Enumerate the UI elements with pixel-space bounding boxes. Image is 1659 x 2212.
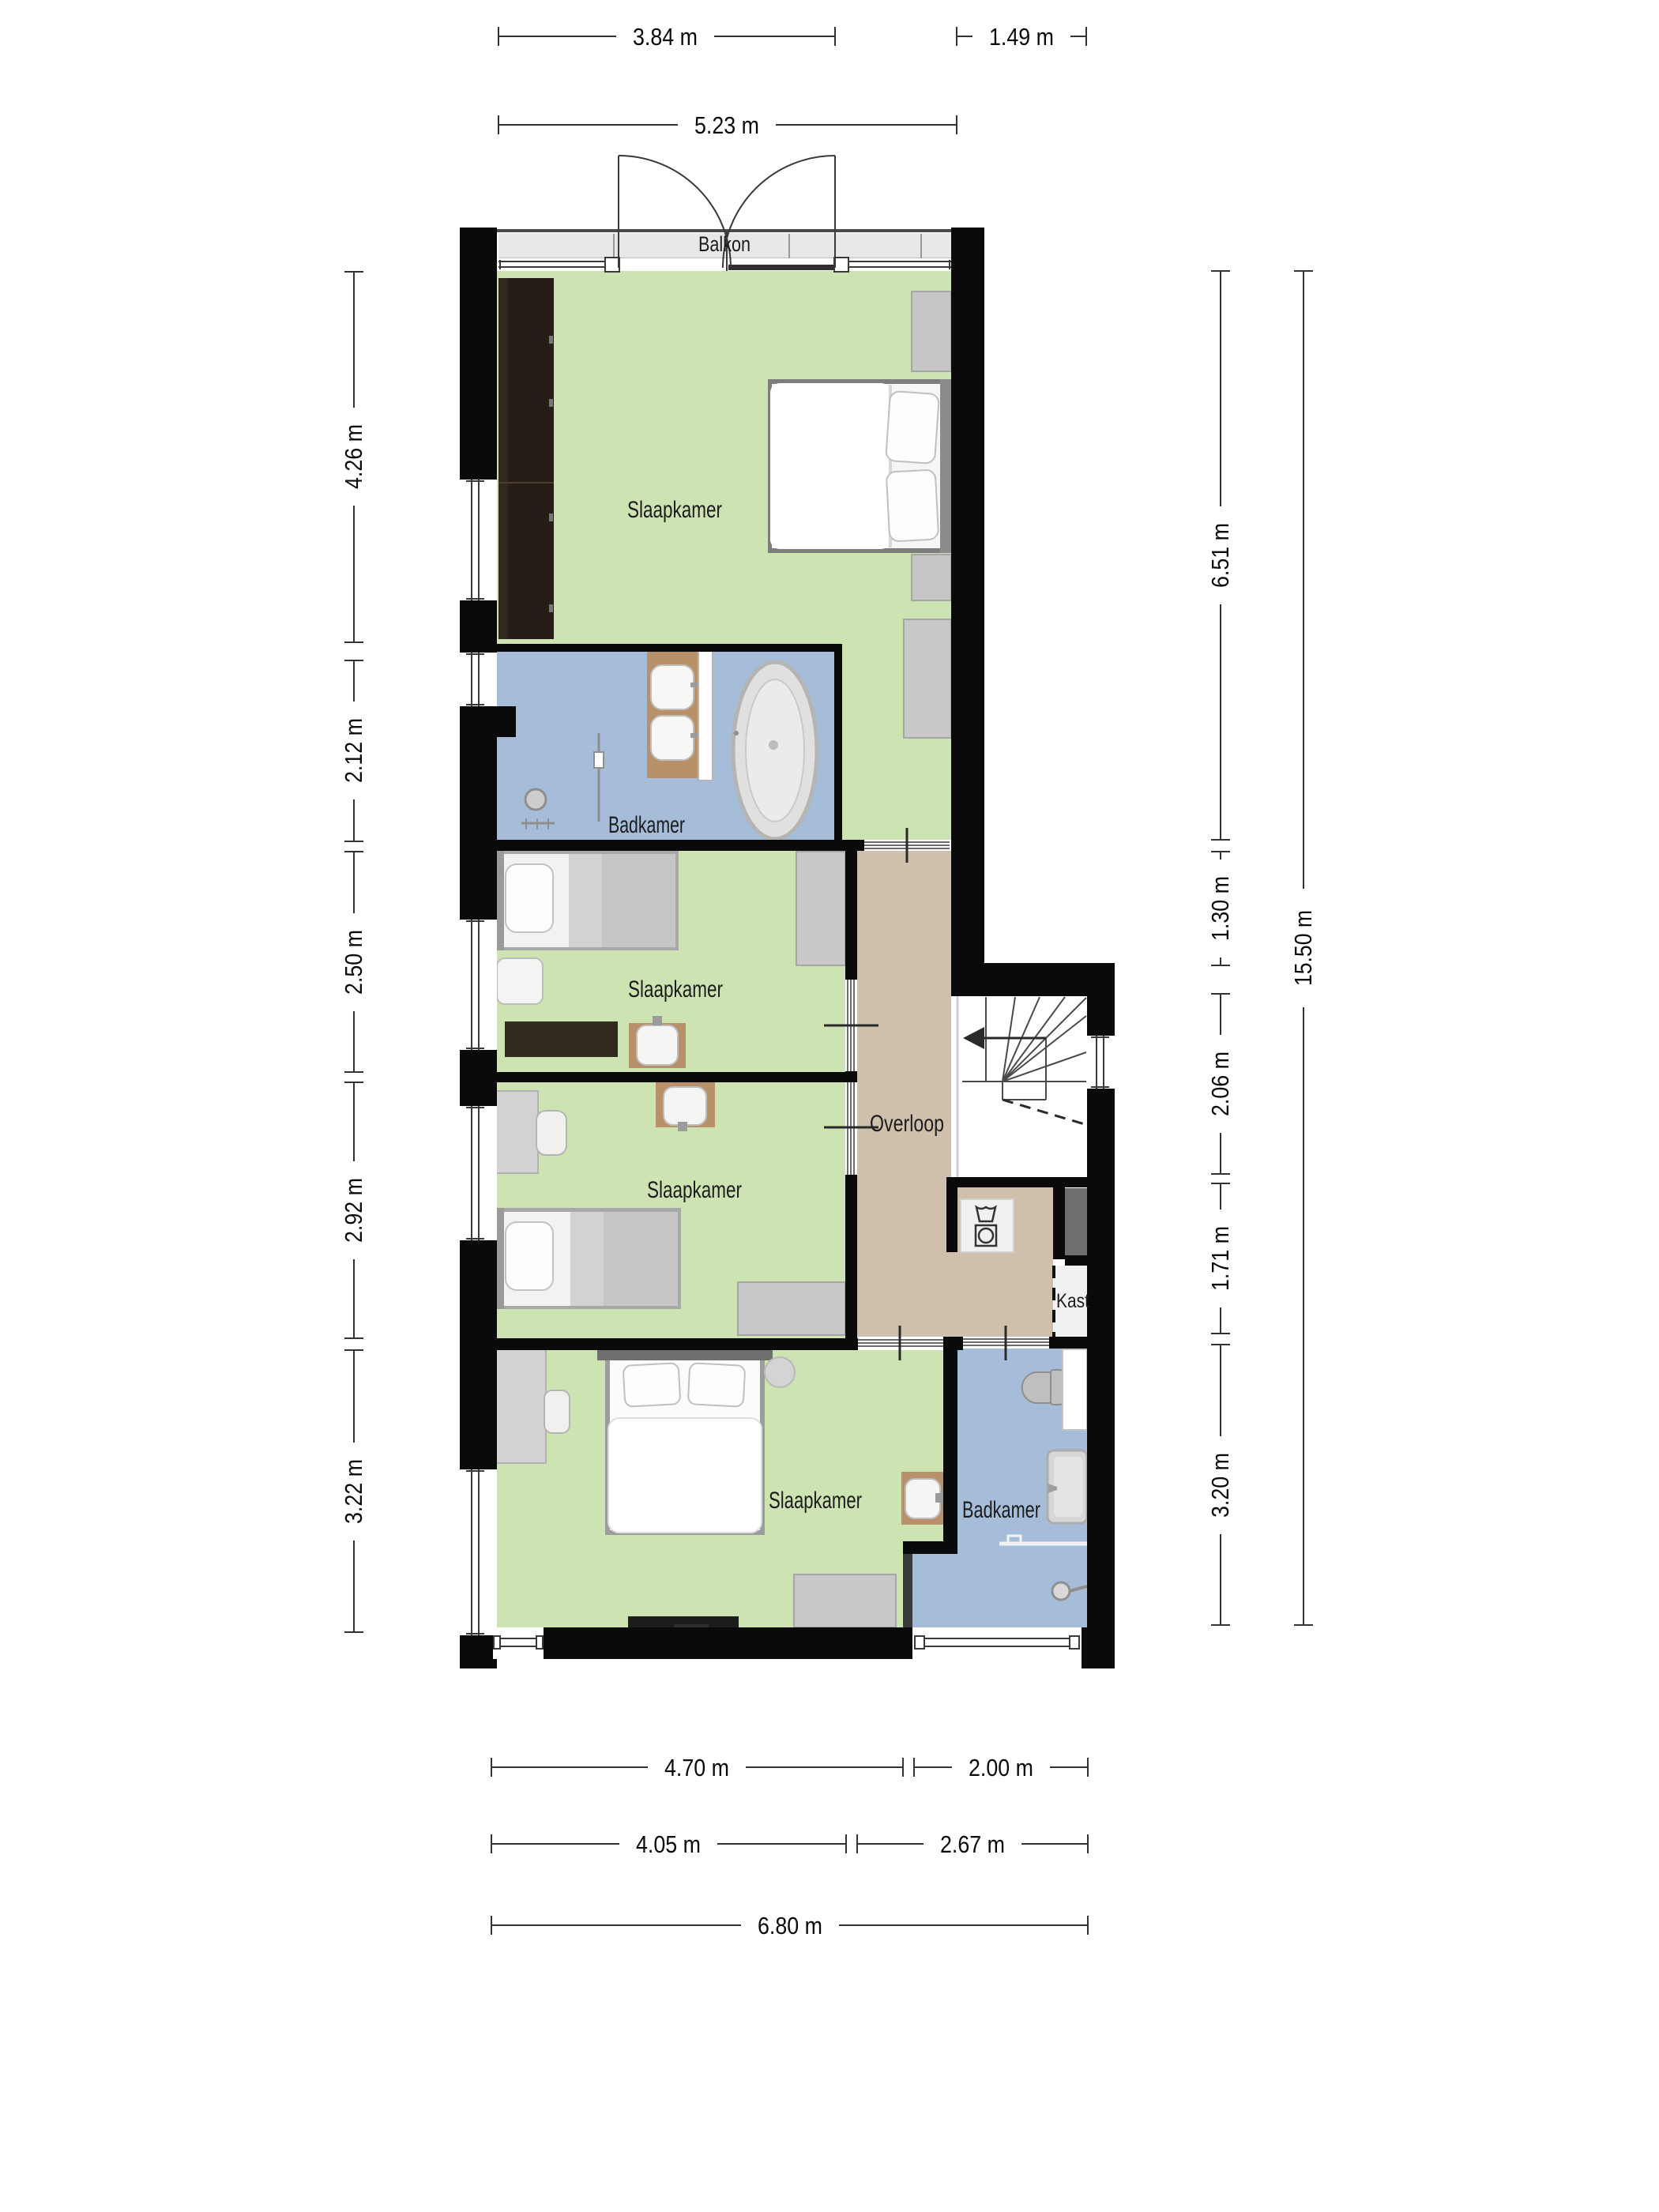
svg-text:2.12 m: 2.12 m <box>340 718 367 783</box>
svg-text:2.92 m: 2.92 m <box>340 1178 367 1243</box>
svg-text:Slaapkamer: Slaapkamer <box>627 497 722 523</box>
svg-text:Slaapkamer: Slaapkamer <box>647 1177 742 1203</box>
svg-text:3.84 m: 3.84 m <box>633 23 698 51</box>
svg-text:5.23 m: 5.23 m <box>694 111 759 139</box>
svg-text:2.00 m: 2.00 m <box>969 1754 1033 1781</box>
svg-text:15.50 m: 15.50 m <box>1289 910 1317 986</box>
svg-text:Overloop: Overloop <box>870 1111 944 1137</box>
svg-text:2.50 m: 2.50 m <box>340 930 367 995</box>
svg-text:2.06 m: 2.06 m <box>1206 1051 1234 1116</box>
svg-text:3.22 m: 3.22 m <box>340 1459 367 1524</box>
svg-text:4.05 m: 4.05 m <box>636 1830 701 1858</box>
svg-text:Slaapkamer: Slaapkamer <box>628 976 723 1003</box>
svg-text:4.26 m: 4.26 m <box>340 424 367 489</box>
svg-text:6.80 m: 6.80 m <box>758 1912 822 1939</box>
svg-text:Badkamer: Badkamer <box>608 812 685 838</box>
svg-text:1.49 m: 1.49 m <box>989 23 1054 51</box>
svg-text:6.51 m: 6.51 m <box>1206 523 1234 588</box>
svg-text:Badkamer: Badkamer <box>962 1497 1040 1523</box>
svg-text:Slaapkamer: Slaapkamer <box>769 1488 862 1514</box>
svg-text:2.67 m: 2.67 m <box>940 1830 1005 1858</box>
svg-text:1.30 m: 1.30 m <box>1206 876 1234 941</box>
svg-text:Balkon: Balkon <box>698 232 750 256</box>
svg-text:1.71 m: 1.71 m <box>1206 1226 1234 1291</box>
svg-text:4.70 m: 4.70 m <box>664 1754 729 1781</box>
svg-text:3.20 m: 3.20 m <box>1206 1453 1234 1518</box>
svg-text:Kast: Kast <box>1056 1290 1089 1312</box>
